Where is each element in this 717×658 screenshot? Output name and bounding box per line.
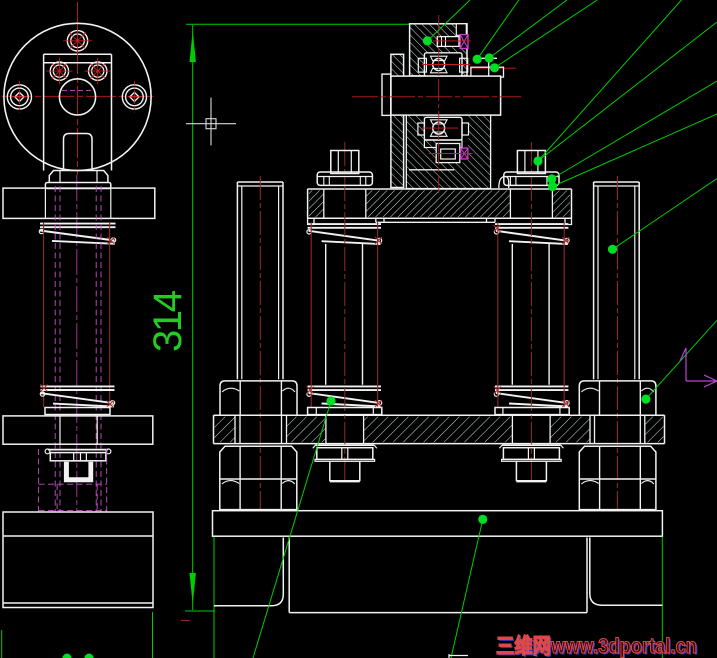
- svg-text:314: 314: [146, 290, 190, 352]
- svg-text:三维网www.3dportal.cn: 三维网www.3dportal.cn: [496, 634, 697, 658]
